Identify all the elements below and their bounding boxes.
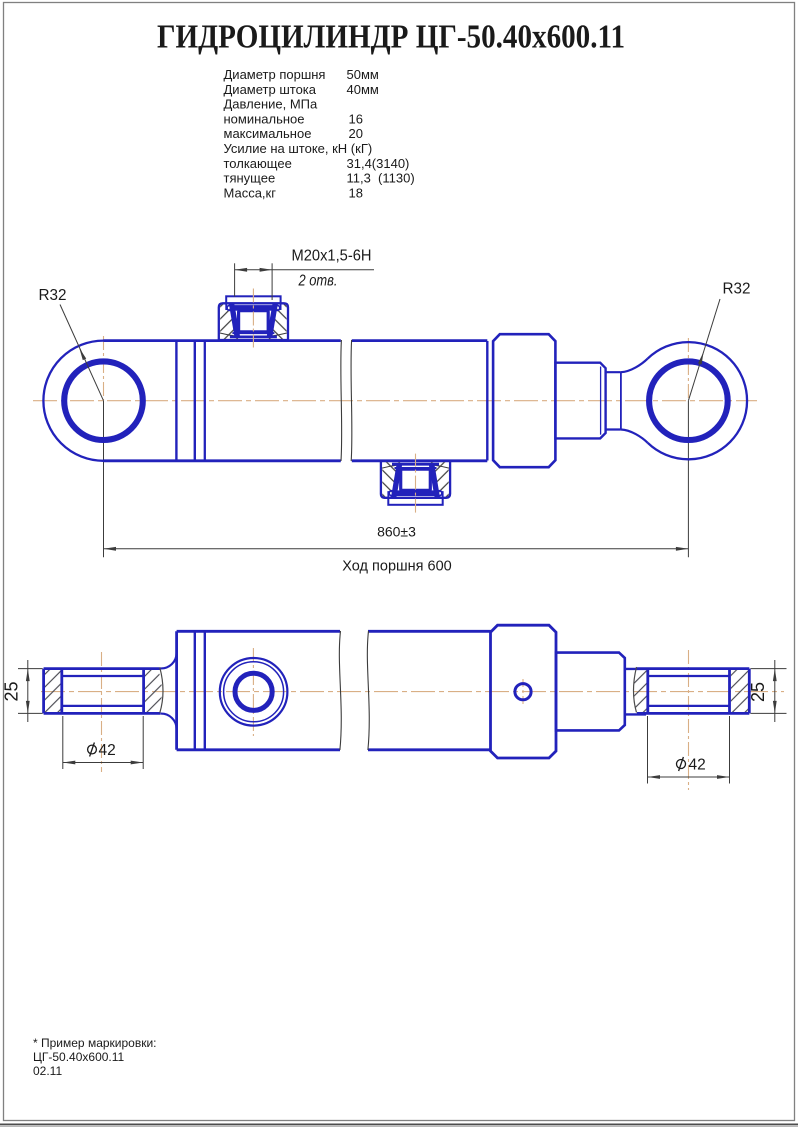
- svg-text:ЦГ-50.40х600.11: ЦГ-50.40х600.11: [33, 1050, 125, 1064]
- svg-text:максимальное: максимальное: [224, 126, 312, 141]
- svg-text:50мм: 50мм: [347, 67, 379, 82]
- svg-text:40мм: 40мм: [347, 82, 379, 97]
- svg-text:20: 20: [349, 126, 363, 141]
- svg-text:M20x1,5-6H: M20x1,5-6H: [292, 248, 372, 265]
- svg-text:11,3 (1130): 11,3 (1130): [347, 171, 415, 186]
- svg-text:Диаметр штока: Диаметр штока: [224, 82, 317, 97]
- svg-text:ГИДРОЦИЛИНДР ЦГ-50.40х600.11: ГИДРОЦИЛИНДР ЦГ-50.40х600.11: [157, 19, 625, 56]
- svg-text:42: 42: [689, 757, 706, 774]
- svg-text:R32: R32: [39, 287, 67, 304]
- svg-text:2 отв.: 2 отв.: [298, 273, 338, 290]
- svg-text:860±3: 860±3: [377, 524, 416, 540]
- svg-text:номинальное: номинальное: [224, 111, 305, 126]
- svg-text:R32: R32: [723, 281, 751, 298]
- svg-text:16: 16: [349, 111, 363, 126]
- svg-text:тянущее: тянущее: [224, 171, 276, 186]
- svg-text:толкающее: толкающее: [224, 156, 292, 171]
- svg-text:Давление, МПа: Давление, МПа: [224, 97, 319, 112]
- svg-text:02.11: 02.11: [33, 1064, 62, 1078]
- svg-text:Усилие на штоке, кН (кГ): Усилие на штоке, кН (кГ): [224, 141, 373, 156]
- svg-text:25: 25: [748, 682, 768, 702]
- svg-text:* Пример маркировки:: * Пример маркировки:: [33, 1036, 157, 1050]
- svg-text:18: 18: [349, 185, 363, 200]
- svg-text:Масса,кг: Масса,кг: [224, 185, 277, 200]
- svg-text:25: 25: [2, 681, 22, 701]
- svg-text:Ход поршня 600: Ход поршня 600: [342, 559, 451, 575]
- svg-text:42: 42: [99, 742, 116, 759]
- svg-text:31,4(3140): 31,4(3140): [347, 156, 410, 171]
- svg-text:Диаметр поршня: Диаметр поршня: [224, 67, 326, 82]
